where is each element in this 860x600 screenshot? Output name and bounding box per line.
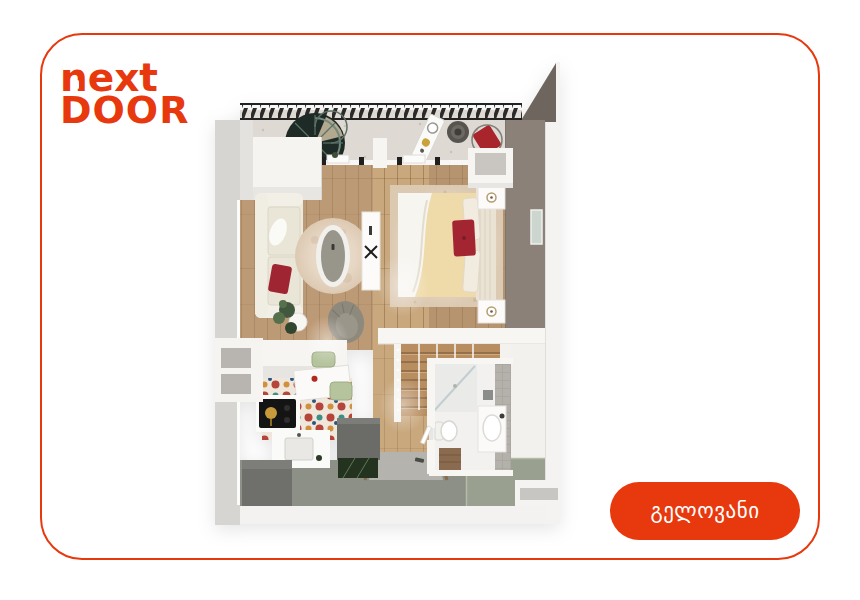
left-shelf-unit (215, 338, 263, 402)
fridge-box (242, 460, 292, 506)
stool (330, 382, 352, 400)
glass-display (338, 458, 378, 478)
project-button-gelovani[interactable]: გელოვანი (610, 482, 800, 540)
nightstand-top (478, 186, 505, 209)
listing-card: next DOOR (40, 33, 820, 560)
brand-logo-line1: next (60, 62, 189, 95)
bathroom-vanity (478, 406, 506, 452)
bathtub (316, 225, 350, 287)
bath-mat (439, 448, 461, 470)
toilet (435, 421, 457, 441)
logo-door-handle-mark (76, 80, 79, 89)
floor-plan-render (215, 60, 560, 525)
balcony-railing (240, 103, 522, 120)
kitchen-dark-cabinet (337, 418, 380, 460)
red-accent-pillow (452, 219, 476, 256)
nightstand-bottom (478, 300, 505, 323)
wall-art (531, 210, 542, 244)
coffee-area (295, 218, 371, 294)
balcony-fire-table (447, 121, 469, 143)
bedroom-partition-wall (378, 328, 545, 344)
upper-cabinet-right (468, 148, 513, 188)
brand-logo: next DOOR (60, 62, 189, 127)
upper-wall-slope (520, 63, 556, 122)
apartment-floor-plan (215, 60, 560, 525)
bathroom (421, 358, 513, 476)
bottle (316, 455, 322, 461)
